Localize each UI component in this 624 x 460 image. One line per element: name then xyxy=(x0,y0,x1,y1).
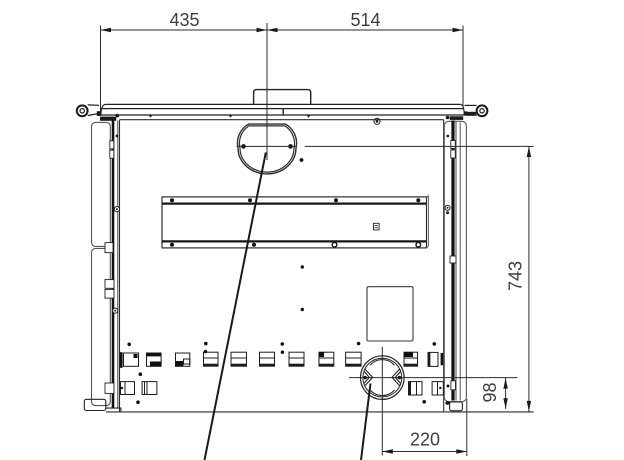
svg-text:435: 435 xyxy=(169,10,199,30)
svg-text:514: 514 xyxy=(350,10,380,30)
svg-text:220: 220 xyxy=(410,430,440,450)
svg-text:743: 743 xyxy=(506,261,526,291)
svg-text:98: 98 xyxy=(480,382,500,402)
